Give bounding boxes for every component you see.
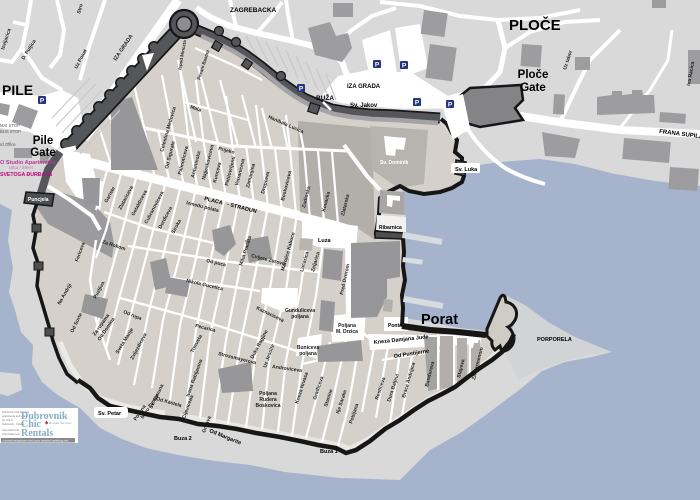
- svg-text:Ribarnica: Ribarnica: [379, 225, 402, 231]
- svg-text:Sv. Jakov: Sv. Jakov: [350, 103, 378, 109]
- svg-text:P: P: [40, 97, 45, 104]
- svg-text:Sv. Petar: Sv. Petar: [98, 411, 122, 417]
- svg-text:PLOČE: PLOČE: [509, 16, 561, 34]
- svg-text:IZA GRADA: IZA GRADA: [347, 84, 381, 90]
- svg-text:Gate: Gate: [520, 82, 546, 94]
- svg-text:Luza: Luza: [318, 238, 331, 244]
- svg-text:chicrentals.com: chicrentals.com: [2, 432, 20, 436]
- svg-text:poljana: poljana: [299, 351, 317, 357]
- svg-text:for rent in: for rent in: [2, 418, 14, 422]
- svg-text:Ploče: Ploče: [518, 69, 549, 81]
- svg-text:MAI STOP: MAI STOP: [0, 123, 20, 128]
- svg-text:Rentals: Rentals: [21, 428, 53, 439]
- svg-text:SVETOGA ĐURĐA 16: SVETOGA ĐURĐA 16: [0, 172, 52, 178]
- svg-text:Gate: Gate: [30, 147, 56, 159]
- svg-text:P: P: [415, 99, 420, 106]
- svg-text:BUŽA: BUŽA: [316, 93, 334, 102]
- svg-text:ZAGREBACKA: ZAGREBACKA: [230, 7, 277, 14]
- svg-text:rd Office: rd Office: [0, 142, 16, 147]
- svg-text:www.dubrovnik: www.dubrovnik: [2, 428, 20, 432]
- svg-text:Rentals Services: Rentals Services: [49, 421, 72, 425]
- svg-text:Buza 1: Buza 1: [320, 449, 338, 455]
- svg-text:Ponta: Ponta: [388, 323, 402, 329]
- svg-text:Pile: Pile: [33, 135, 53, 147]
- svg-text:BUS STOP: BUS STOP: [0, 129, 21, 134]
- svg-text:Ulica / Street: Ulica / Street: [9, 165, 34, 170]
- svg-text:P: P: [299, 85, 304, 92]
- svg-text:P: P: [402, 62, 407, 69]
- svg-text:Sv. Dominik: Sv. Dominik: [380, 160, 408, 166]
- svg-text:P: P: [448, 101, 453, 108]
- svg-text:P: P: [375, 61, 380, 68]
- svg-text:Porat: Porat: [421, 312, 458, 328]
- svg-text:Sv. Luka: Sv. Luka: [455, 167, 478, 173]
- svg-text:Puncjela: Puncjela: [28, 197, 49, 203]
- svg-text:M. Drzica: M. Drzica: [336, 329, 358, 335]
- svg-text:PORPORELA: PORPORELA: [537, 337, 572, 343]
- svg-text:PILE: PILE: [2, 82, 33, 98]
- svg-text:Buza 2: Buza 2: [174, 436, 192, 442]
- svg-text:a brand management and luxury: a brand management and luxury vacation m…: [3, 439, 69, 443]
- svg-text:Boskovica: Boskovica: [255, 403, 280, 409]
- svg-text:poljana: poljana: [291, 314, 309, 320]
